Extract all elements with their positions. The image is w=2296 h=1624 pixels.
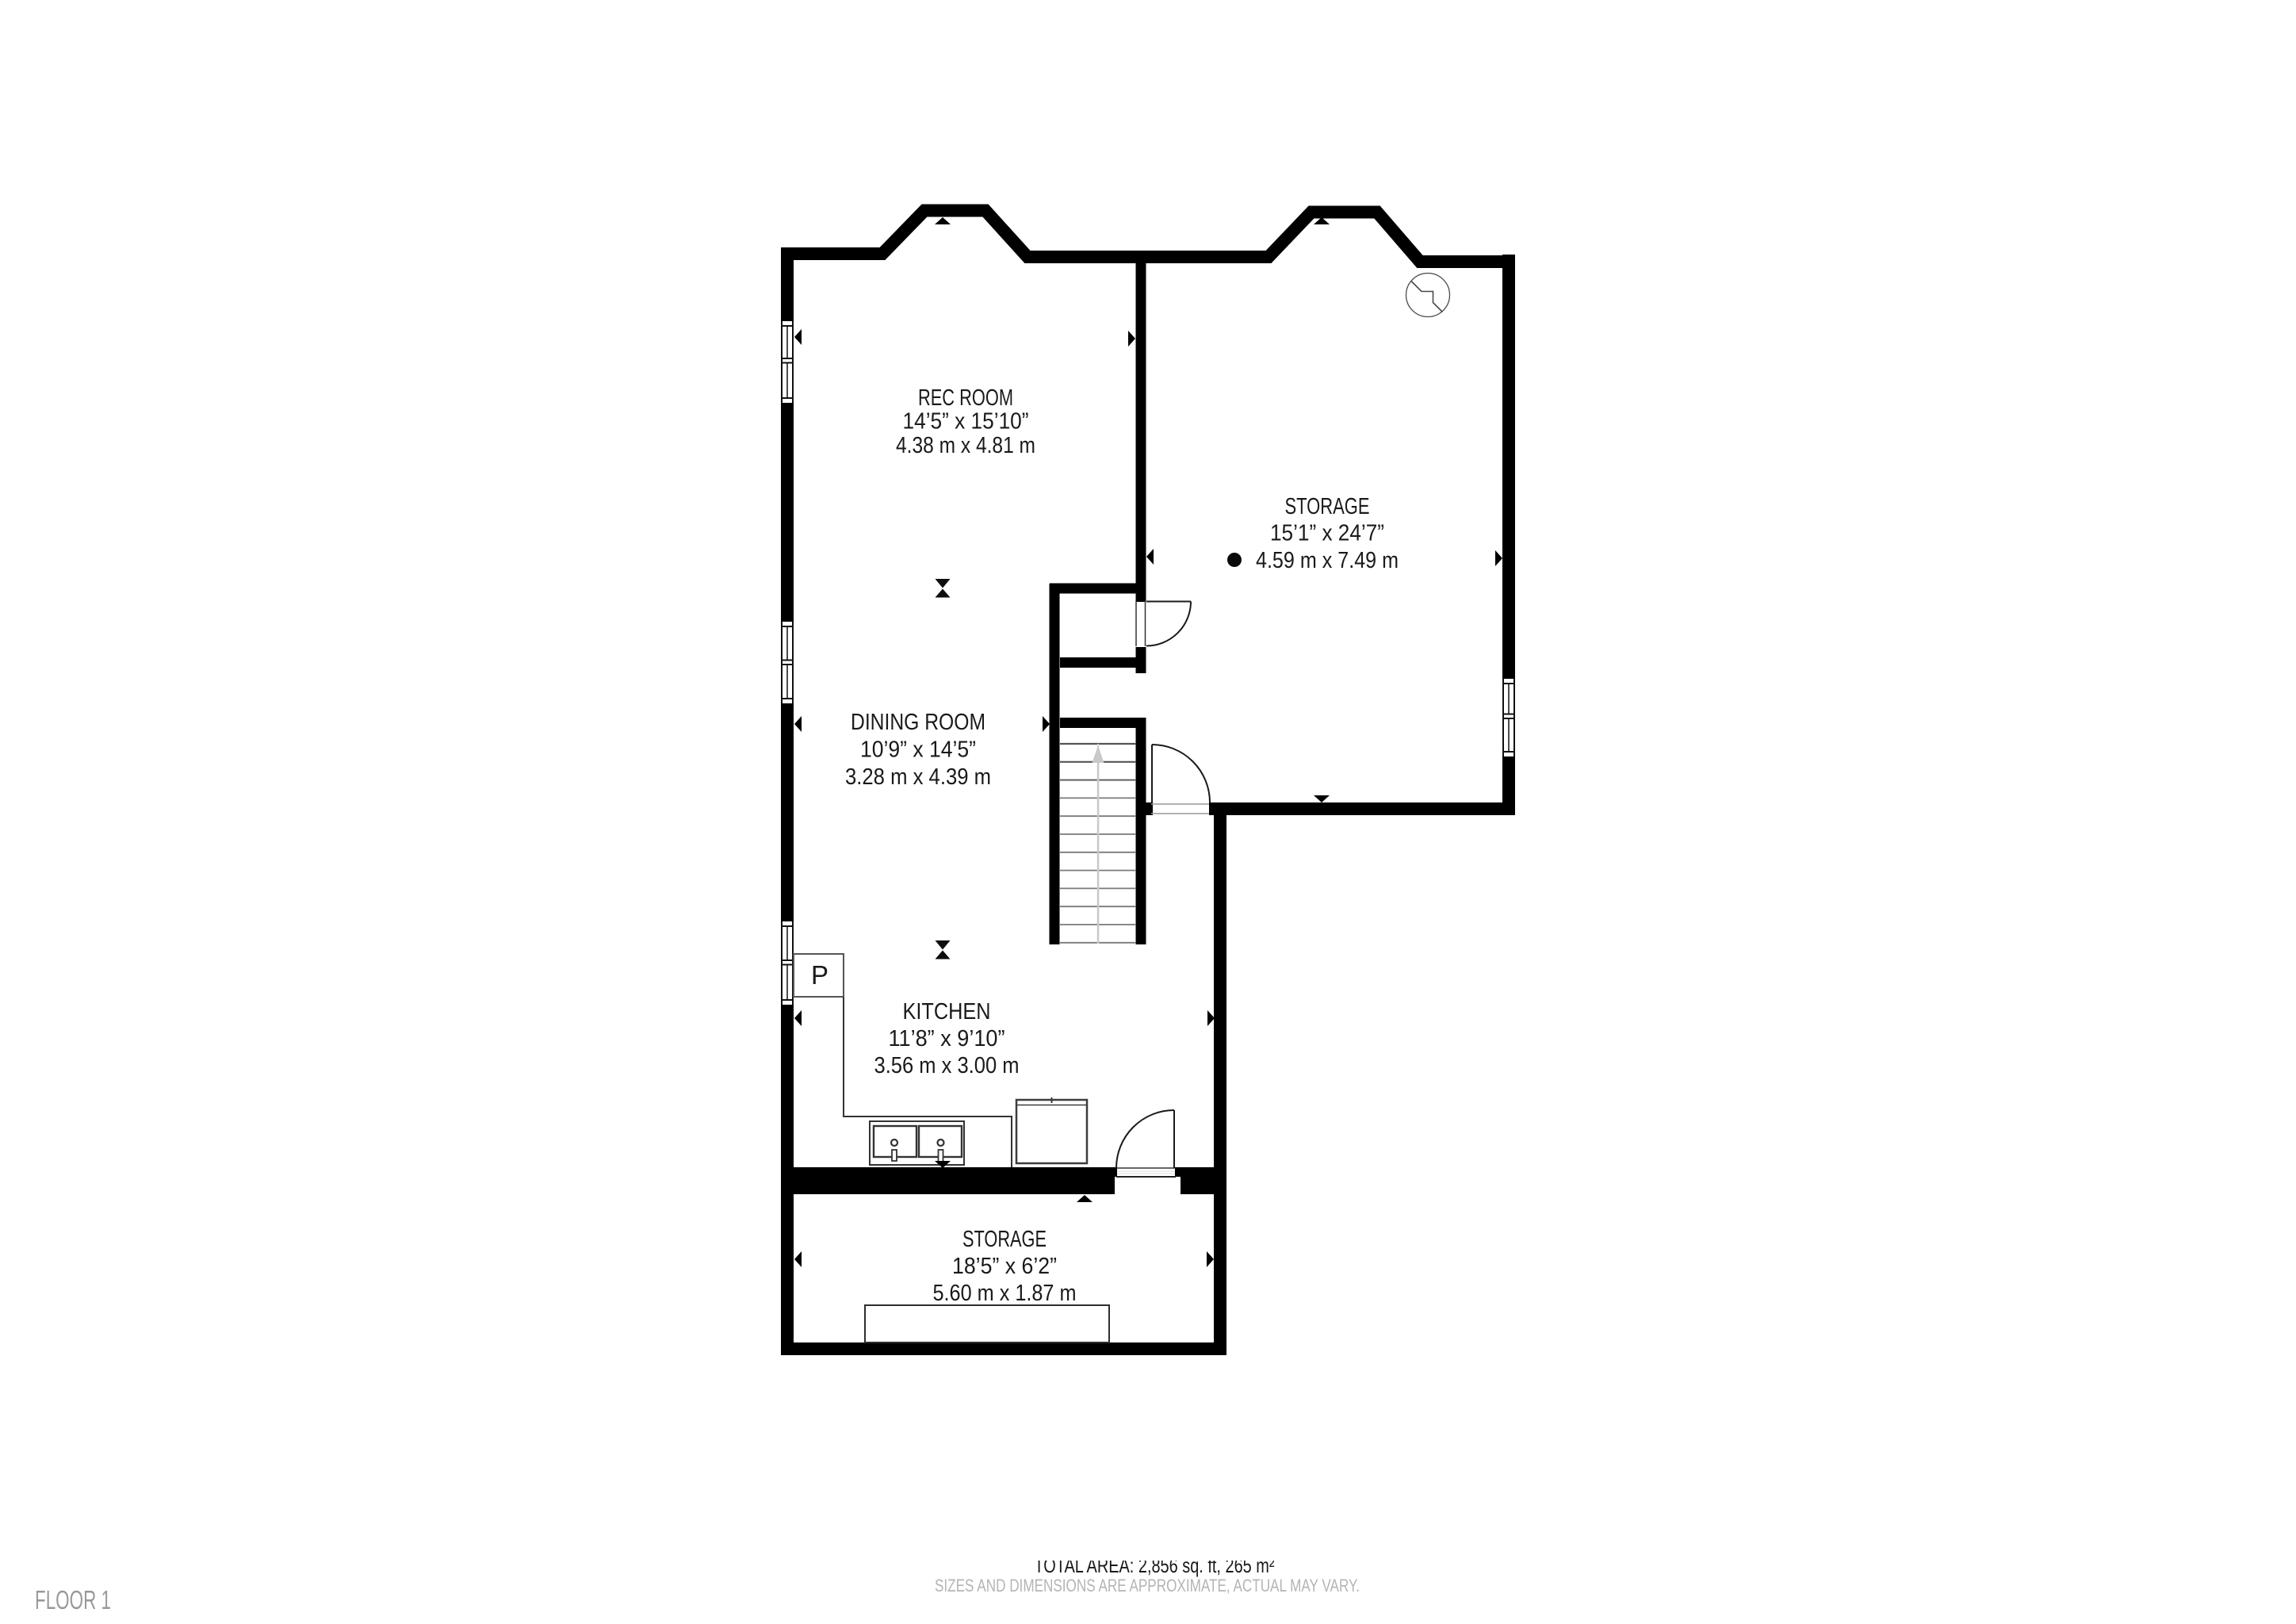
svg-text:KITCHEN: KITCHEN [903,999,991,1025]
svg-text:15’1” x 24’7”: 15’1” x 24’7” [1270,521,1384,546]
svg-text:18’5” x 6’2”: 18’5” x 6’2” [952,1254,1057,1279]
svg-text:REC ROOM: REC ROOM [918,385,1013,411]
svg-text:14’5” x 15’10”: 14’5” x 15’10” [903,409,1029,435]
svg-text:P: P [811,960,828,990]
svg-text:FLOOR 1: FLOOR 1 [35,1585,111,1614]
svg-text:4.38 m x 4.81 m: 4.38 m x 4.81 m [896,433,1035,458]
svg-text:STORAGE: STORAGE [1285,494,1370,519]
svg-text:4.59 m x 7.49 m: 4.59 m x 7.49 m [1256,548,1399,573]
svg-text:3.56 m x 3.00 m: 3.56 m x 3.00 m [874,1053,1020,1078]
svg-text:STORAGE: STORAGE [962,1227,1047,1252]
svg-text:3.28 m x 4.39 m: 3.28 m x 4.39 m [845,764,991,790]
svg-text:11’8” x 9’10”: 11’8” x 9’10” [889,1026,1005,1051]
svg-text:5.60 m x 1.87 m: 5.60 m x 1.87 m [933,1281,1077,1306]
svg-text:10’9” x 14’5”: 10’9” x 14’5” [860,737,976,763]
svg-text:SIZES AND DIMENSIONS ARE APPRO: SIZES AND DIMENSIONS ARE APPROXIMATE, AC… [935,1576,1360,1595]
svg-text:DINING ROOM: DINING ROOM [851,710,985,735]
